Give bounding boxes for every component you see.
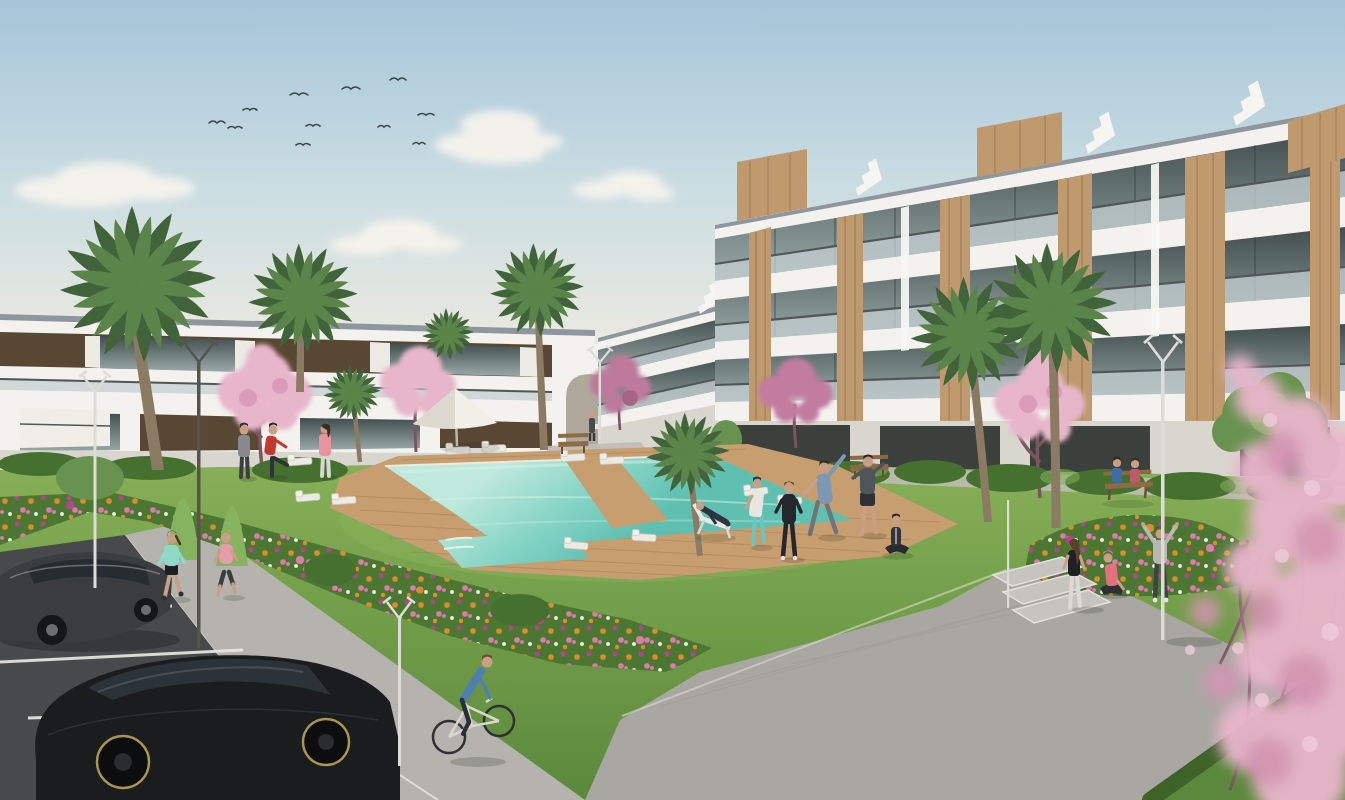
sedan-car [0, 552, 180, 652]
flag-pole [1007, 500, 1009, 608]
scene-rendering [0, 0, 1345, 800]
rendering-canvas [0, 0, 1345, 800]
